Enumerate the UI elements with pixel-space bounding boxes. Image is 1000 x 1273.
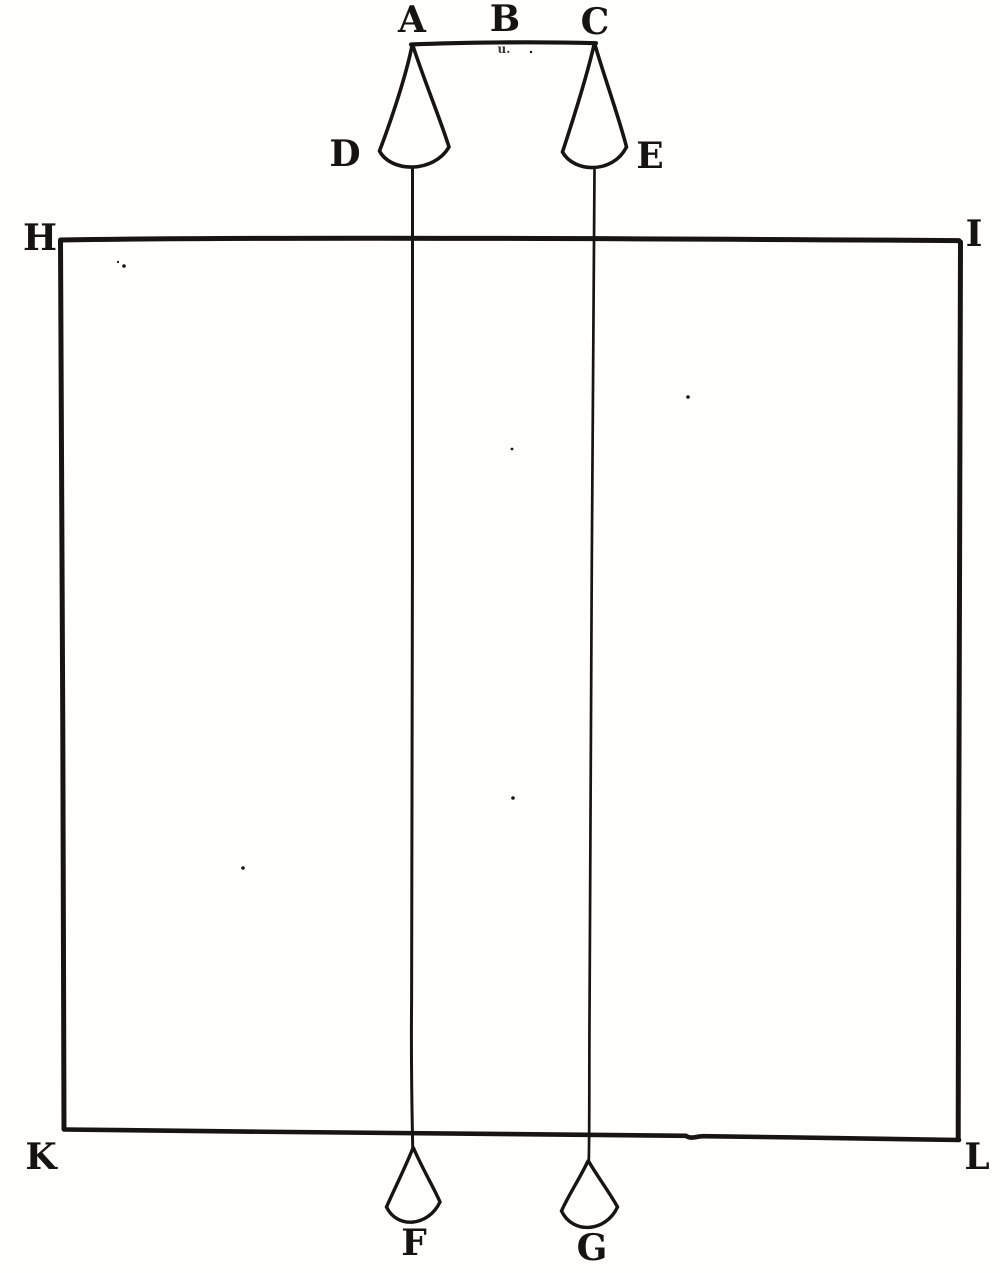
cone-d-outline	[380, 46, 450, 167]
label-point-c: C	[581, 4, 610, 40]
ink-stroke-group	[61, 42, 961, 1227]
figure-canvas: A B C D E F G H I K L u.	[0, 0, 1000, 1273]
label-point-e: E	[636, 138, 663, 174]
label-point-k: K	[25, 1139, 56, 1175]
label-point-l: L	[964, 1139, 989, 1175]
label-point-a: A	[398, 2, 426, 38]
label-point-f: F	[401, 1225, 427, 1261]
plumb-line-right	[589, 170, 595, 1160]
scan-specks	[117, 51, 690, 870]
cone-f-outline	[387, 1148, 441, 1222]
label-point-g: G	[577, 1230, 608, 1266]
diagram-svg	[0, 0, 1000, 1273]
screen-top-edge	[61, 238, 959, 240]
label-point-b: B	[490, 1, 520, 37]
speck	[117, 261, 119, 263]
cone-g-outline	[562, 1161, 618, 1227]
speck	[122, 264, 126, 268]
cone-e-outline	[563, 45, 627, 168]
screen-left-edge	[61, 240, 65, 1129]
speck	[686, 395, 690, 399]
print-artifact-mark: u.	[498, 42, 511, 56]
screen-bottom-edge	[64, 1130, 959, 1141]
label-point-h: H	[23, 220, 57, 256]
label-point-d: D	[329, 136, 360, 172]
speck	[530, 51, 532, 53]
screen-right-edge	[958, 242, 960, 1139]
speck	[511, 796, 515, 800]
label-point-i: I	[966, 216, 983, 252]
plumb-line-left	[411, 167, 412, 1147]
speck	[511, 448, 514, 451]
speck	[241, 866, 245, 870]
